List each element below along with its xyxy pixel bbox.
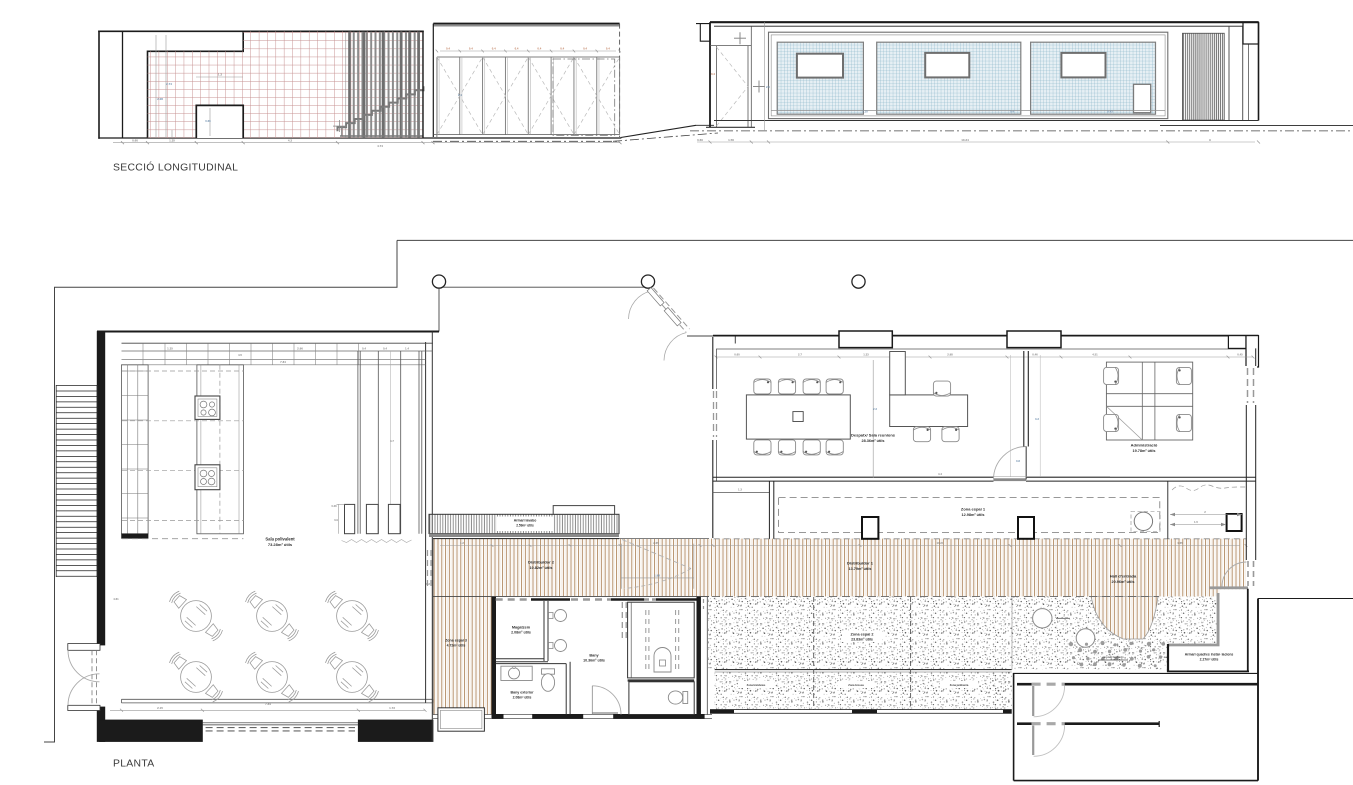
svg-text:0.4: 0.4: [515, 47, 519, 51]
svg-text:2.1: 2.1: [458, 93, 462, 97]
svg-text:4.51: 4.51: [1092, 353, 1098, 357]
svg-text:2.59m² útils: 2.59m² útils: [516, 524, 534, 528]
svg-text:73.28m² útils: 73.28m² útils: [268, 542, 293, 547]
svg-text:Magatzem: Magatzem: [512, 626, 531, 630]
svg-text:28.36m² útils: 28.36m² útils: [861, 439, 884, 443]
svg-text:4.74: 4.74: [377, 144, 383, 148]
svg-text:10.21: 10.21: [937, 541, 944, 545]
svg-text:0.4: 0.4: [362, 347, 366, 351]
svg-text:1.3: 1.3: [218, 73, 223, 77]
svg-text:Despatx/ Sala reunions: Despatx/ Sala reunions: [851, 433, 896, 438]
svg-text:0.38: 0.38: [331, 504, 337, 508]
svg-text:0.46: 0.46: [1032, 353, 1038, 357]
svg-text:4.5: 4.5: [238, 353, 242, 357]
svg-text:0.8: 0.8: [1016, 459, 1020, 463]
svg-text:10.36m² útils: 10.36m² útils: [583, 659, 605, 663]
svg-text:Zona espai 3: Zona espai 3: [445, 639, 467, 643]
svg-text:2.08m² útils: 2.08m² útils: [511, 631, 531, 635]
svg-text:0.4: 0.4: [583, 47, 587, 51]
svg-text:2.27m² útils: 2.27m² útils: [1200, 658, 1219, 662]
svg-text:4.72m² útils: 4.72m² útils: [447, 644, 466, 648]
svg-text:escocell vegetació: escocell vegetació: [1102, 656, 1124, 659]
svg-text:0.4: 0.4: [711, 72, 715, 76]
svg-text:2.96: 2.96: [297, 347, 303, 351]
svg-text:1.56: 1.56: [728, 138, 734, 142]
svg-text:1.2: 1.2: [426, 582, 430, 586]
svg-text:0.4: 0.4: [1010, 110, 1014, 114]
svg-text:2.98: 2.98: [947, 353, 953, 357]
svg-text:0.60: 0.60: [132, 139, 138, 143]
svg-text:1.65: 1.65: [1177, 541, 1183, 545]
svg-text:Administració: Administració: [1131, 443, 1158, 448]
svg-text:Armari quadres instal· lacion: Armari quadres instal· lacions: [1185, 653, 1234, 657]
svg-text:1.73: 1.73: [389, 706, 395, 710]
svg-text:Hall d’entrada: Hall d’entrada: [1110, 574, 1137, 579]
svg-text:Sala polivalent: Sala polivalent: [265, 537, 295, 542]
svg-text:1.35: 1.35: [167, 347, 173, 351]
svg-text:5.43: 5.43: [1107, 110, 1113, 114]
svg-text:1.4: 1.4: [405, 347, 409, 351]
svg-text:2.5: 2.5: [766, 85, 770, 89]
svg-text:1.2: 1.2: [460, 541, 464, 545]
svg-text:4.4: 4.4: [938, 472, 942, 476]
svg-text:0.4: 0.4: [469, 47, 473, 51]
svg-text:Distribuïdor 1: Distribuïdor 1: [847, 561, 874, 566]
svg-text:10.82m² útils: 10.82m² útils: [529, 566, 552, 570]
svg-text:13.79m² útils: 13.79m² útils: [848, 567, 871, 571]
svg-text:0.45: 0.45: [1237, 353, 1243, 357]
svg-text:12.98m² útils: 12.98m² útils: [961, 513, 984, 517]
svg-text:0.4: 0.4: [606, 47, 610, 51]
svg-text:2.28: 2.28: [157, 97, 163, 101]
svg-text:23.83m² útils: 23.83m² útils: [851, 638, 873, 642]
svg-text:1.33: 1.33: [863, 353, 869, 357]
svg-text:Distribuïdor 2: Distribuïdor 2: [528, 560, 555, 565]
svg-text:0.9: 0.9: [334, 518, 338, 522]
svg-text:0.60: 0.60: [697, 138, 703, 142]
svg-text:2.7: 2.7: [798, 353, 802, 357]
svg-text:0.4: 0.4: [446, 47, 450, 51]
svg-text:1.3: 1.3: [738, 488, 742, 492]
svg-text:2.74: 2.74: [166, 82, 172, 86]
svg-text:Zona jardineria: Zona jardineria: [950, 683, 969, 687]
svg-text:1.35: 1.35: [169, 139, 175, 143]
svg-text:0.4: 0.4: [492, 47, 496, 51]
svg-text:7.84: 7.84: [265, 702, 271, 706]
svg-text:Zona espai 1: Zona espai 1: [961, 507, 986, 512]
svg-text:2.65: 2.65: [653, 541, 659, 545]
svg-text:0.4: 0.4: [560, 47, 564, 51]
svg-text:2.3: 2.3: [873, 407, 877, 411]
svg-text:Zona espai 2: Zona espai 2: [850, 633, 873, 637]
svg-text:4.61: 4.61: [113, 597, 119, 601]
svg-text:0.60: 0.60: [734, 353, 740, 357]
svg-text:3.3: 3.3: [1035, 417, 1039, 421]
svg-text:1.98: 1.98: [654, 574, 660, 578]
svg-text:0.4: 0.4: [383, 347, 387, 351]
svg-text:Bany exterior: Bany exterior: [511, 691, 535, 695]
svg-text:4.7: 4.7: [390, 439, 394, 443]
svg-text:0.66: 0.66: [205, 119, 211, 123]
svg-text:4.3: 4.3: [288, 139, 293, 143]
svg-text:10.34: 10.34: [961, 138, 969, 142]
svg-text:20.96m² útils: 20.96m² útils: [1111, 580, 1134, 584]
svg-text:5.10: 5.10: [862, 110, 868, 114]
svg-text:SECCIÓ LONGITUDINAL: SECCIÓ LONGITUDINAL: [113, 161, 238, 174]
svg-text:Zona brossa: Zona brossa: [848, 683, 864, 687]
svg-text:Zona bicicletes: Zona bicicletes: [747, 683, 766, 687]
svg-text:1.5: 1.5: [1194, 520, 1198, 524]
svg-text:Bany: Bany: [589, 654, 599, 658]
svg-text:0.4: 0.4: [537, 47, 541, 51]
svg-text:PLANTA: PLANTA: [113, 759, 154, 770]
svg-text:Armari lavabo: Armari lavabo: [514, 519, 537, 523]
svg-text:2.08m² útils: 2.08m² útils: [513, 695, 532, 699]
svg-text:7.84: 7.84: [280, 360, 286, 364]
svg-text:19.78m² útils: 19.78m² útils: [1132, 449, 1155, 453]
svg-text:2.15: 2.15: [157, 706, 163, 710]
